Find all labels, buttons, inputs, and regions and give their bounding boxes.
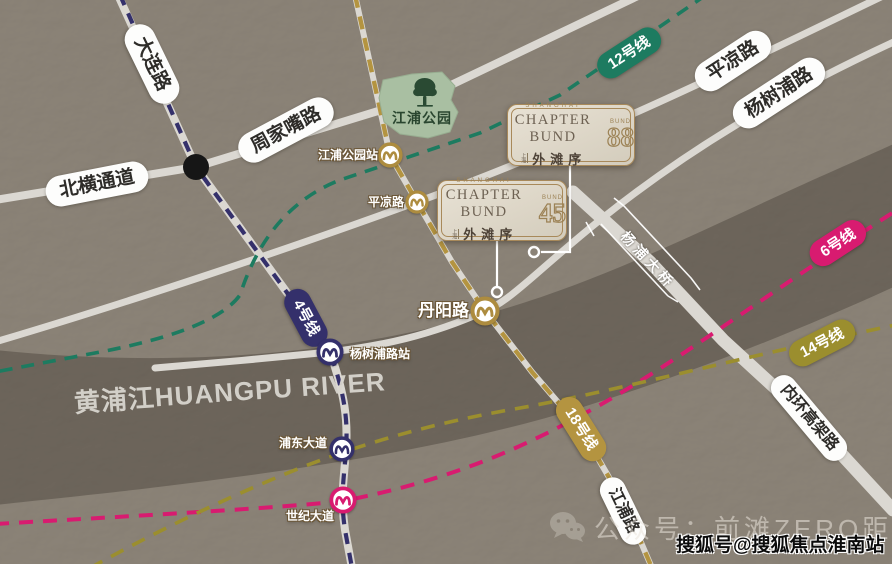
map-canvas: [0, 0, 892, 564]
station-label-danyang: 丹阳路: [418, 302, 469, 319]
wechat-icon: [548, 510, 586, 544]
card-mark: 上海: [520, 153, 529, 163]
project-card-bund45: SHANGHAI CHAPTER BUND 上海 外滩序 BUND 45: [437, 180, 567, 241]
intersection-dot: [183, 154, 209, 180]
station-label-pudong-avenue: 浦东大道: [279, 437, 327, 449]
card-mark: 上海: [451, 229, 460, 239]
card-title-cn: 外滩序: [463, 224, 517, 243]
card-region-label: SHANGHAI: [508, 103, 598, 109]
project-card-bund88: SHANGHAI CHAPTER BUND 上海 外滩序 BUND 88: [507, 104, 635, 166]
park-label: 江浦公园: [392, 108, 452, 128]
card-region-label: SHANGHAI: [438, 178, 530, 184]
metro-logo-yangshupu-station: [316, 338, 344, 366]
station-label-jiangpu-park: 江浦公园站: [318, 149, 378, 161]
card-bund-number: 45: [539, 201, 566, 227]
metro-logo-pudong-avenue-station: [329, 436, 355, 462]
station-label-yangshupu: 杨树浦路站: [350, 348, 410, 360]
station-label-century-avenue: 世纪大道: [286, 510, 334, 522]
map-screenshot: 黄浦江HUANGPU RIVER 江浦公园 杨浦大桥 大连路 周家嘴路 北横通道…: [0, 0, 892, 564]
metro-logo-pingliang-station: [405, 190, 429, 214]
card-title-cn: 外滩序: [532, 149, 586, 168]
card-title-en: CHAPTER BUND: [438, 187, 530, 221]
watermark-sohu-text: 搜狐号@搜狐焦点淮南站: [676, 530, 885, 557]
card-title-en: CHAPTER BUND: [508, 112, 598, 146]
plot-marker-88: [529, 247, 539, 257]
metro-logo-danyang-station: [470, 296, 500, 326]
station-label-pingliang: 平凉路: [368, 196, 404, 208]
card-bund-number: 88: [607, 125, 634, 151]
metro-logo-jiangpu-park-station: [377, 142, 403, 168]
